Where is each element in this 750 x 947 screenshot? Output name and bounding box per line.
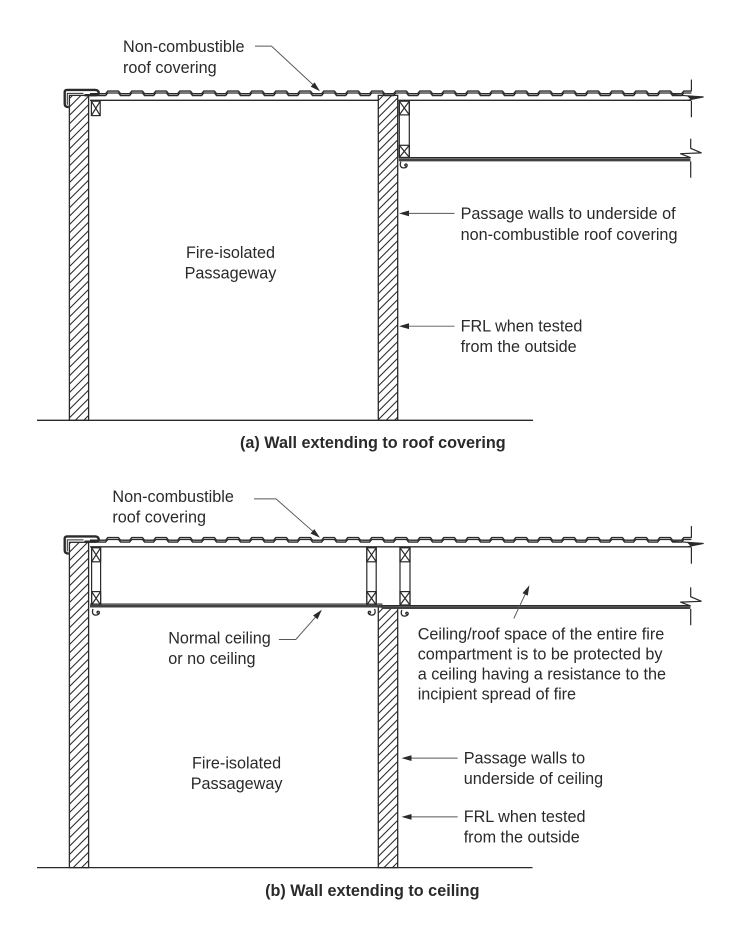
svg-text:from the outside: from the outside (461, 338, 577, 356)
svg-text:Normal ceiling: Normal ceiling (168, 630, 271, 648)
svg-text:(a) Wall extending to roof cov: (a) Wall extending to roof covering (240, 434, 506, 452)
svg-text:Ceiling/roof space of the enti: Ceiling/roof space of the entire fire (418, 626, 665, 644)
svg-text:FRL when tested: FRL when tested (464, 808, 586, 826)
svg-text:a ceiling having a resistance: a ceiling having a resistance to the (418, 666, 666, 684)
svg-text:non-combustible roof covering: non-combustible roof covering (461, 226, 678, 244)
svg-text:compartment is to be protected: compartment is to be protected by (418, 646, 664, 664)
svg-text:from the outside: from the outside (464, 829, 580, 847)
svg-text:Passageway: Passageway (191, 775, 284, 793)
svg-text:Passage walls to underside of: Passage walls to underside of (461, 205, 677, 223)
svg-text:roof covering: roof covering (112, 509, 206, 527)
svg-text:or no ceiling: or no ceiling (168, 650, 255, 668)
svg-text:Non-combustible: Non-combustible (112, 488, 233, 506)
svg-text:Passage walls to: Passage walls to (464, 749, 585, 767)
svg-text:Fire-isolated: Fire-isolated (186, 244, 275, 262)
svg-text:roof covering: roof covering (123, 59, 217, 77)
svg-text:Fire-isolated: Fire-isolated (192, 755, 281, 773)
svg-text:Non-combustible: Non-combustible (123, 38, 244, 56)
svg-text:incipient spread of fire: incipient spread of fire (418, 685, 576, 703)
svg-text:Passageway: Passageway (185, 265, 278, 283)
svg-text:(b) Wall extending to ceiling: (b) Wall extending to ceiling (265, 882, 479, 900)
svg-text:FRL when tested: FRL when tested (461, 317, 583, 335)
svg-text:underside of ceiling: underside of ceiling (464, 770, 603, 788)
